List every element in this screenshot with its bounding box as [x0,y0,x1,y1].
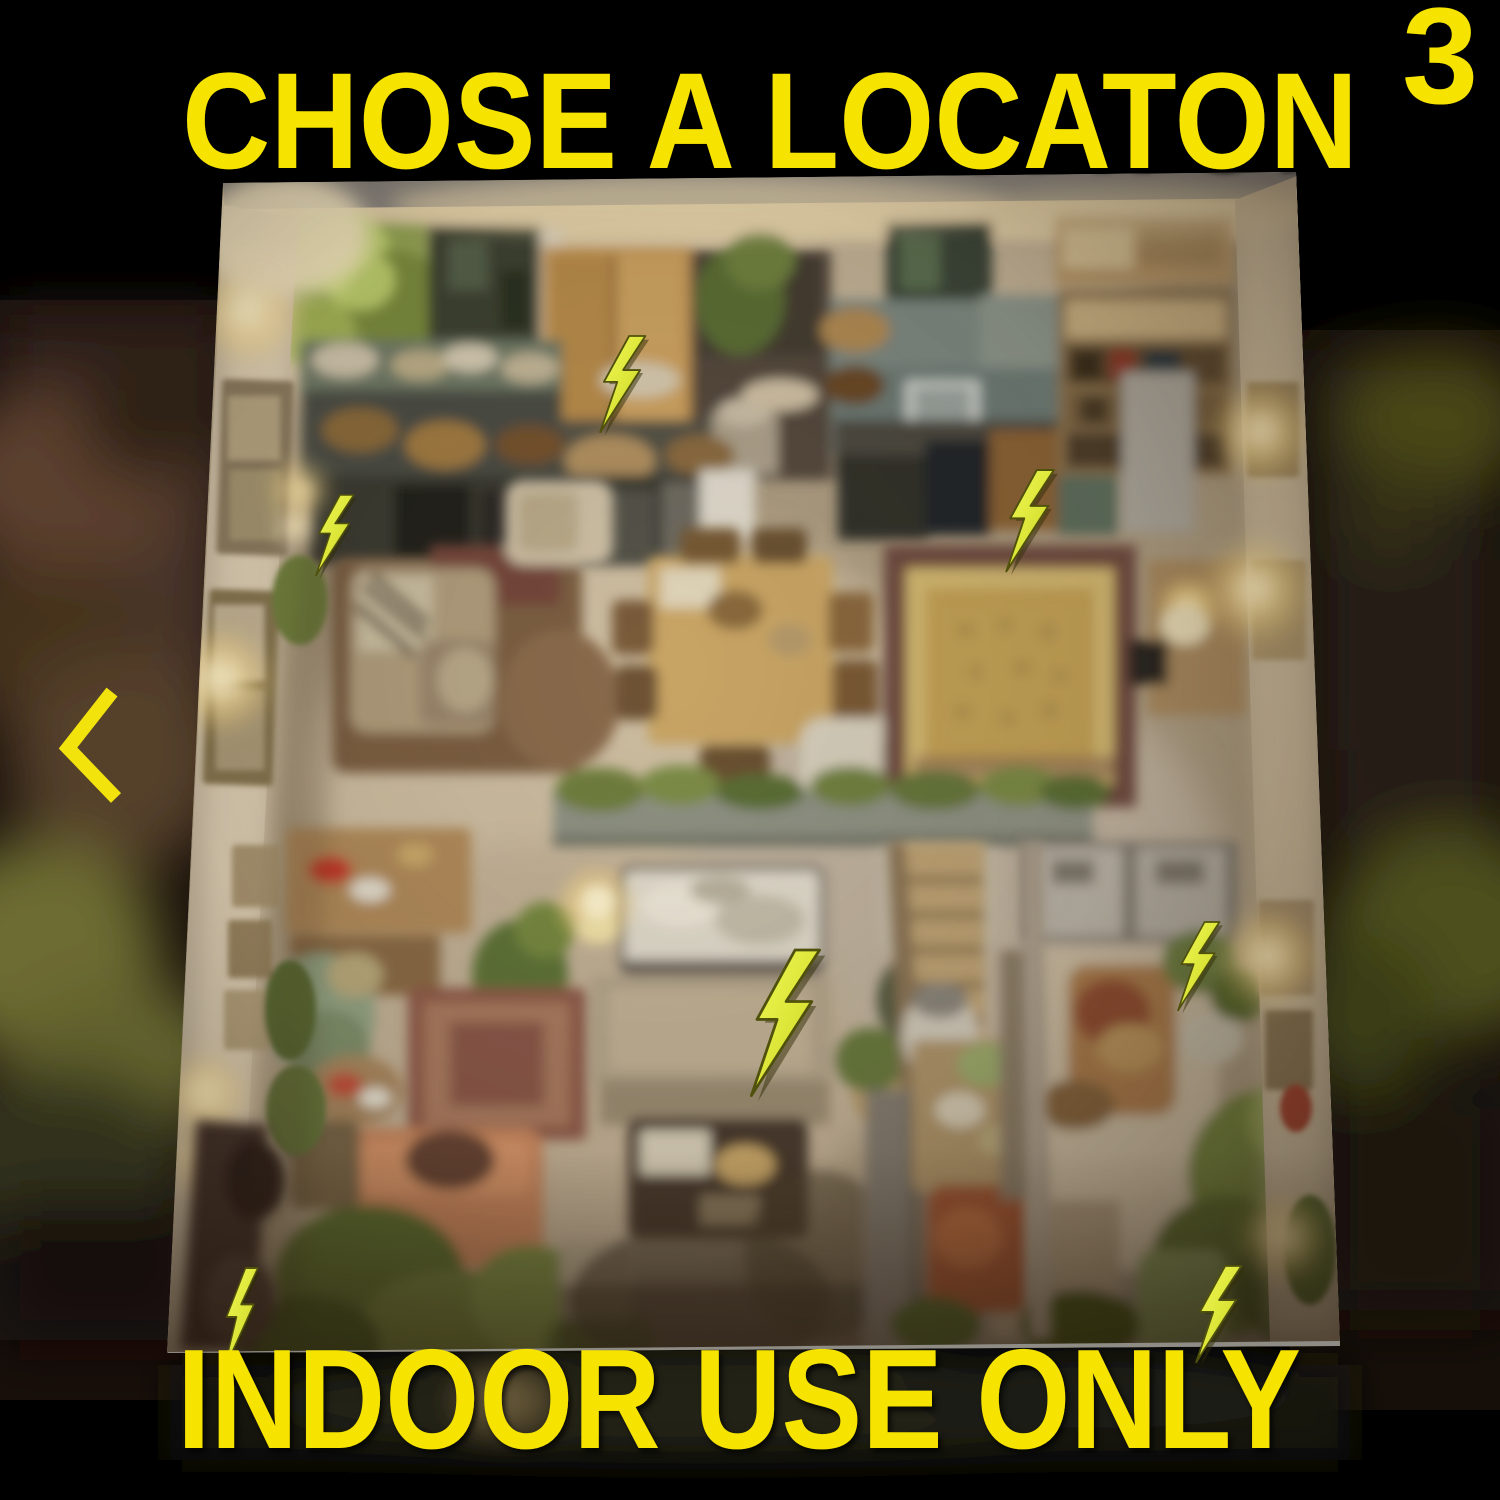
svg-text:CHOSE A LOCATON: CHOSE A LOCATON [182,45,1358,198]
svg-text:INDOOR USE ONLY: INDOOR USE ONLY [177,1320,1301,1479]
svg-text:3: 3 [1402,0,1478,133]
